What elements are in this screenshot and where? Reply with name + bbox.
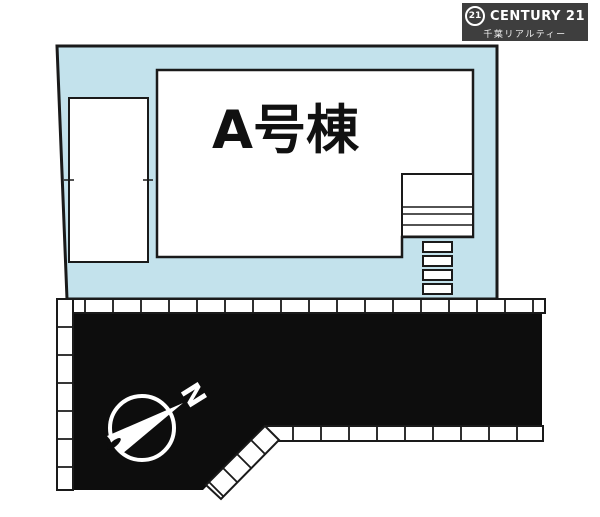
boundary-band-top: [57, 299, 545, 313]
step-1: [423, 242, 452, 252]
step-4: [423, 284, 452, 294]
band-bottom-body: [265, 426, 543, 441]
building-label: A号棟: [212, 104, 359, 157]
porch-outline: [402, 174, 473, 237]
parking-space-outline: [69, 98, 148, 262]
band-top-body: [57, 299, 545, 313]
site-plan-drawing: N: [0, 0, 600, 517]
site-plan-canvas: N A号棟 21 CENTURY 21 千葉リアルティー: [0, 0, 600, 517]
boundary-band-bottom: [265, 426, 543, 441]
century21-seal-icon: 21: [465, 6, 485, 26]
road-surface: [73, 313, 542, 490]
brand-logo: 21 CENTURY 21 千葉リアルティー: [462, 3, 588, 41]
entrance-porch: [402, 174, 473, 237]
parking-space: [64, 98, 153, 262]
boundary-band-left: [57, 299, 73, 490]
brand-subtitle: 千葉リアルティー: [462, 27, 588, 40]
step-3: [423, 270, 452, 280]
step-2: [423, 256, 452, 266]
brand-logo-row: 21 CENTURY 21: [462, 6, 588, 26]
brand-name: CENTURY 21: [490, 9, 585, 24]
